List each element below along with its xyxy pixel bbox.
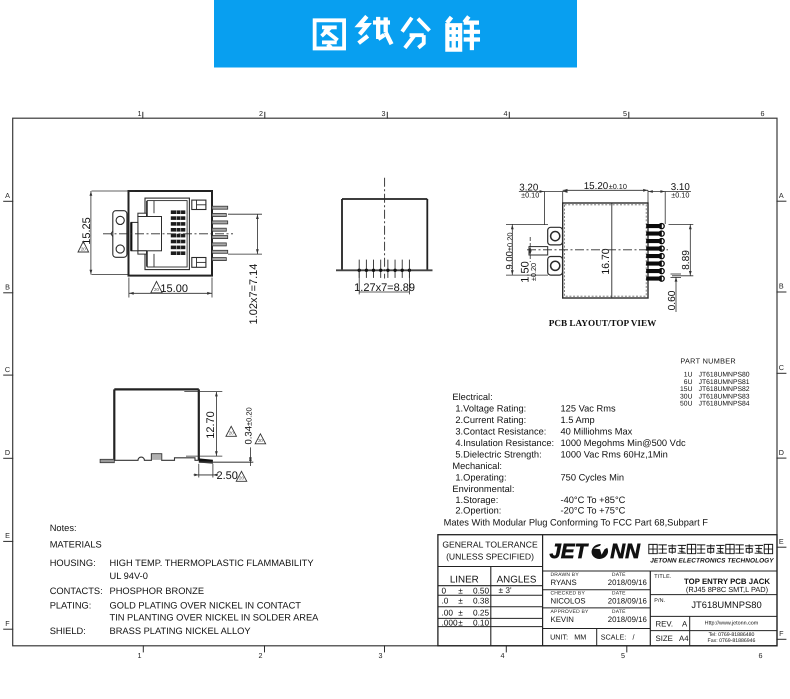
svg-text:MATERIALS: MATERIALS (50, 539, 102, 549)
svg-text:1.Operating:: 1.Operating: (455, 473, 506, 483)
svg-text:UNIT:: UNIT: (550, 632, 568, 641)
svg-text:±: ± (458, 617, 463, 627)
svg-text:12.70: 12.70 (205, 411, 217, 439)
svg-text:1: 1 (138, 651, 142, 660)
svg-text:6: 6 (761, 109, 765, 118)
svg-text:1000 Megohms Min@500 Vdc: 1000 Megohms Min@500 Vdc (561, 438, 687, 448)
svg-text:E: E (779, 537, 784, 546)
svg-text:2: 2 (259, 651, 263, 660)
svg-text:40 Milliohms Max: 40 Milliohms Max (561, 427, 633, 437)
svg-text:0.10: 0.10 (473, 617, 490, 627)
svg-text:SIZE: SIZE (656, 634, 673, 643)
svg-text:JT618UMNPS81: JT618UMNPS81 (699, 379, 750, 386)
svg-text:4: 4 (504, 109, 508, 118)
svg-text:PCB LAYOUT/TOP VIEW: PCB LAYOUT/TOP VIEW (549, 318, 657, 328)
svg-text:4.Insulation Resistance:: 4.Insulation Resistance: (455, 438, 554, 448)
svg-text:15.25: 15.25 (81, 217, 93, 245)
svg-text:B: B (5, 283, 10, 292)
svg-text:NICOLOS: NICOLOS (551, 596, 586, 605)
svg-text:Mates With Modular Plug Confor: Mates With Modular Plug Conforming To FC… (444, 518, 709, 528)
svg-text:± 3': ± 3' (498, 585, 511, 595)
svg-text:0.38: 0.38 (473, 596, 490, 606)
svg-text:5.Dielectric Strength:: 5.Dielectric Strength: (455, 450, 541, 460)
svg-text:P/N.: P/N. (654, 598, 665, 604)
svg-text:2018/09/16: 2018/09/16 (608, 615, 647, 624)
svg-text:Mechanical:: Mechanical: (452, 461, 502, 471)
svg-text:50U: 50U (680, 401, 693, 408)
svg-text:-20°C To +75°C: -20°C To +75°C (561, 506, 626, 516)
svg-text:F: F (5, 619, 10, 628)
svg-text:±0.10: ±0.10 (609, 182, 627, 191)
svg-text:/: / (633, 632, 635, 641)
svg-text:A: A (682, 620, 688, 629)
svg-text:1.27x7=8.89: 1.27x7=8.89 (354, 282, 415, 294)
svg-text:8.89: 8.89 (681, 250, 692, 270)
svg-text:CONTACTS:: CONTACTS: (50, 586, 103, 596)
svg-text:TIN PLANTING OVER NICKEL IN SO: TIN PLANTING OVER NICKEL IN SOLDER AREA (110, 613, 320, 623)
svg-text:20: 20 (81, 246, 86, 251)
svg-text:2018/09/16: 2018/09/16 (608, 596, 647, 605)
svg-text:C: C (5, 365, 10, 374)
svg-text:D: D (779, 448, 784, 457)
svg-text:6U: 6U (684, 379, 693, 386)
svg-text:A: A (5, 191, 10, 200)
svg-text:REV.: REV. (656, 620, 673, 629)
svg-text:Notes:: Notes: (50, 523, 77, 533)
svg-text:15U: 15U (680, 386, 693, 393)
svg-text:125 Vac Rms: 125 Vac Rms (561, 404, 616, 414)
svg-text:2.Opertion:: 2.Opertion: (455, 506, 501, 516)
svg-text:3.Contact Resistance:: 3.Contact Resistance: (455, 427, 546, 437)
svg-text:-40°C To +85°C: -40°C To +85°C (561, 495, 626, 505)
svg-text:GOLD PLATING OVER NICKEL IN CO: GOLD PLATING OVER NICKEL IN CONTACT (110, 601, 302, 611)
svg-text:Environmental:: Environmental: (452, 484, 514, 494)
svg-text:F: F (779, 629, 784, 638)
svg-text:6: 6 (759, 651, 763, 660)
svg-text:3: 3 (382, 109, 386, 118)
svg-text:KEVIN: KEVIN (551, 615, 574, 624)
svg-text:B: B (779, 282, 784, 291)
svg-text:(RJ45 8P8C SMT,L PAD): (RJ45 8P8C SMT,L PAD) (686, 585, 768, 594)
svg-text:JET: JET (550, 540, 589, 563)
svg-text:20: 20 (239, 476, 244, 481)
svg-text:750 Cycles Min: 750 Cycles Min (561, 473, 625, 483)
svg-text:15.00: 15.00 (160, 283, 188, 295)
svg-text:GENERAL TOLERANCE: GENERAL TOLERANCE (442, 540, 538, 550)
svg-text:1.5 Amp: 1.5 Amp (561, 415, 595, 425)
svg-text:2: 2 (259, 109, 263, 118)
svg-text:TITLE.: TITLE. (654, 574, 671, 580)
svg-text:JT618UMNPS82: JT618UMNPS82 (699, 386, 750, 393)
svg-text:SCALE:: SCALE: (601, 632, 627, 641)
svg-text:MM: MM (574, 632, 586, 641)
svg-text:Electrical:: Electrical: (452, 392, 492, 402)
svg-text:.00: .00 (442, 608, 454, 618)
svg-text:RYANS: RYANS (551, 578, 577, 587)
svg-text:.000: .000 (442, 617, 459, 627)
svg-text:ANGLES: ANGLES (497, 574, 537, 585)
svg-text:JT618UMNPS83: JT618UMNPS83 (699, 393, 750, 400)
svg-text:15.20: 15.20 (584, 181, 609, 192)
svg-text:PHOSPHOR BRONZE: PHOSPHOR BRONZE (110, 586, 205, 596)
svg-text:0.50: 0.50 (473, 585, 490, 595)
svg-text:.0: .0 (442, 596, 449, 606)
svg-text:±0.10: ±0.10 (521, 191, 539, 200)
svg-text:±0.10: ±0.10 (671, 191, 689, 200)
svg-text:A4: A4 (679, 634, 689, 643)
svg-text:D: D (5, 448, 10, 457)
svg-text:20: 20 (154, 287, 159, 292)
svg-text:2.Current Rating:: 2.Current Rating: (455, 415, 526, 425)
svg-text:3: 3 (379, 651, 383, 660)
svg-text:0.34±0.20: 0.34±0.20 (244, 407, 255, 444)
svg-text:4: 4 (501, 651, 505, 660)
svg-text:SHIELD:: SHIELD: (50, 626, 86, 636)
svg-text:2018/09/16: 2018/09/16 (608, 578, 647, 587)
svg-text:±0.20: ±0.20 (529, 263, 538, 281)
svg-text:1.Storage:: 1.Storage: (455, 495, 498, 505)
svg-text:Http://www.jetonn.com: Http://www.jetonn.com (705, 621, 759, 627)
svg-text:BRASS PLATING NICKEL ALLOY: BRASS PLATING NICKEL ALLOY (110, 626, 251, 636)
svg-text:1: 1 (138, 109, 142, 118)
svg-text:LINER: LINER (450, 574, 479, 585)
svg-text:9.00±0.20: 9.00±0.20 (505, 232, 516, 269)
svg-text:1000 Vac Rms 60Hz,1Min: 1000 Vac Rms 60Hz,1Min (561, 450, 668, 460)
svg-text:PLATING:: PLATING: (50, 601, 92, 611)
svg-text:JT618UMNPS84: JT618UMNPS84 (699, 401, 750, 408)
svg-text:JT618UMNPS80: JT618UMNPS80 (691, 599, 761, 610)
svg-text:PART NUMBER: PART NUMBER (680, 357, 736, 366)
svg-text:UL 94V-0: UL 94V-0 (110, 571, 148, 581)
svg-text:NN: NN (610, 540, 641, 563)
svg-text:±: ± (458, 608, 463, 618)
svg-text:±: ± (458, 596, 463, 606)
svg-text:0.60: 0.60 (667, 290, 678, 310)
svg-text:Fax: 0769-81886946: Fax: 0769-81886946 (708, 638, 756, 644)
svg-text:1.Voltage Rating:: 1.Voltage Rating: (455, 404, 526, 414)
svg-text:20: 20 (258, 438, 263, 443)
svg-text:JT618UMNPS80: JT618UMNPS80 (699, 372, 750, 379)
svg-text:C: C (779, 363, 784, 372)
svg-text:16.70: 16.70 (600, 248, 612, 274)
svg-text:5: 5 (621, 651, 625, 660)
svg-text:HIGH TEMP. THERMOPLASTIC FLAMM: HIGH TEMP. THERMOPLASTIC FLAMMABILITY (110, 558, 314, 568)
svg-text:1U: 1U (684, 372, 693, 379)
svg-text:0: 0 (442, 585, 447, 595)
svg-text:E: E (5, 531, 10, 540)
svg-text:5: 5 (623, 109, 627, 118)
svg-text:±: ± (458, 585, 463, 595)
svg-text:JETONN ELECTRONICS TECHNOLOGY: JETONN ELECTRONICS TECHNOLOGY (650, 557, 774, 564)
svg-text:A: A (779, 191, 784, 200)
svg-text:2.50: 2.50 (216, 470, 237, 482)
svg-text:30U: 30U (680, 393, 693, 400)
svg-text:(UNLESS SPECIFIED): (UNLESS SPECIFIED) (446, 552, 534, 562)
svg-text:20: 20 (229, 431, 234, 436)
svg-text:1.02x7=7.14: 1.02x7=7.14 (248, 264, 260, 325)
svg-text:HOUSING:: HOUSING: (50, 558, 96, 568)
svg-text:0.25: 0.25 (473, 608, 490, 618)
